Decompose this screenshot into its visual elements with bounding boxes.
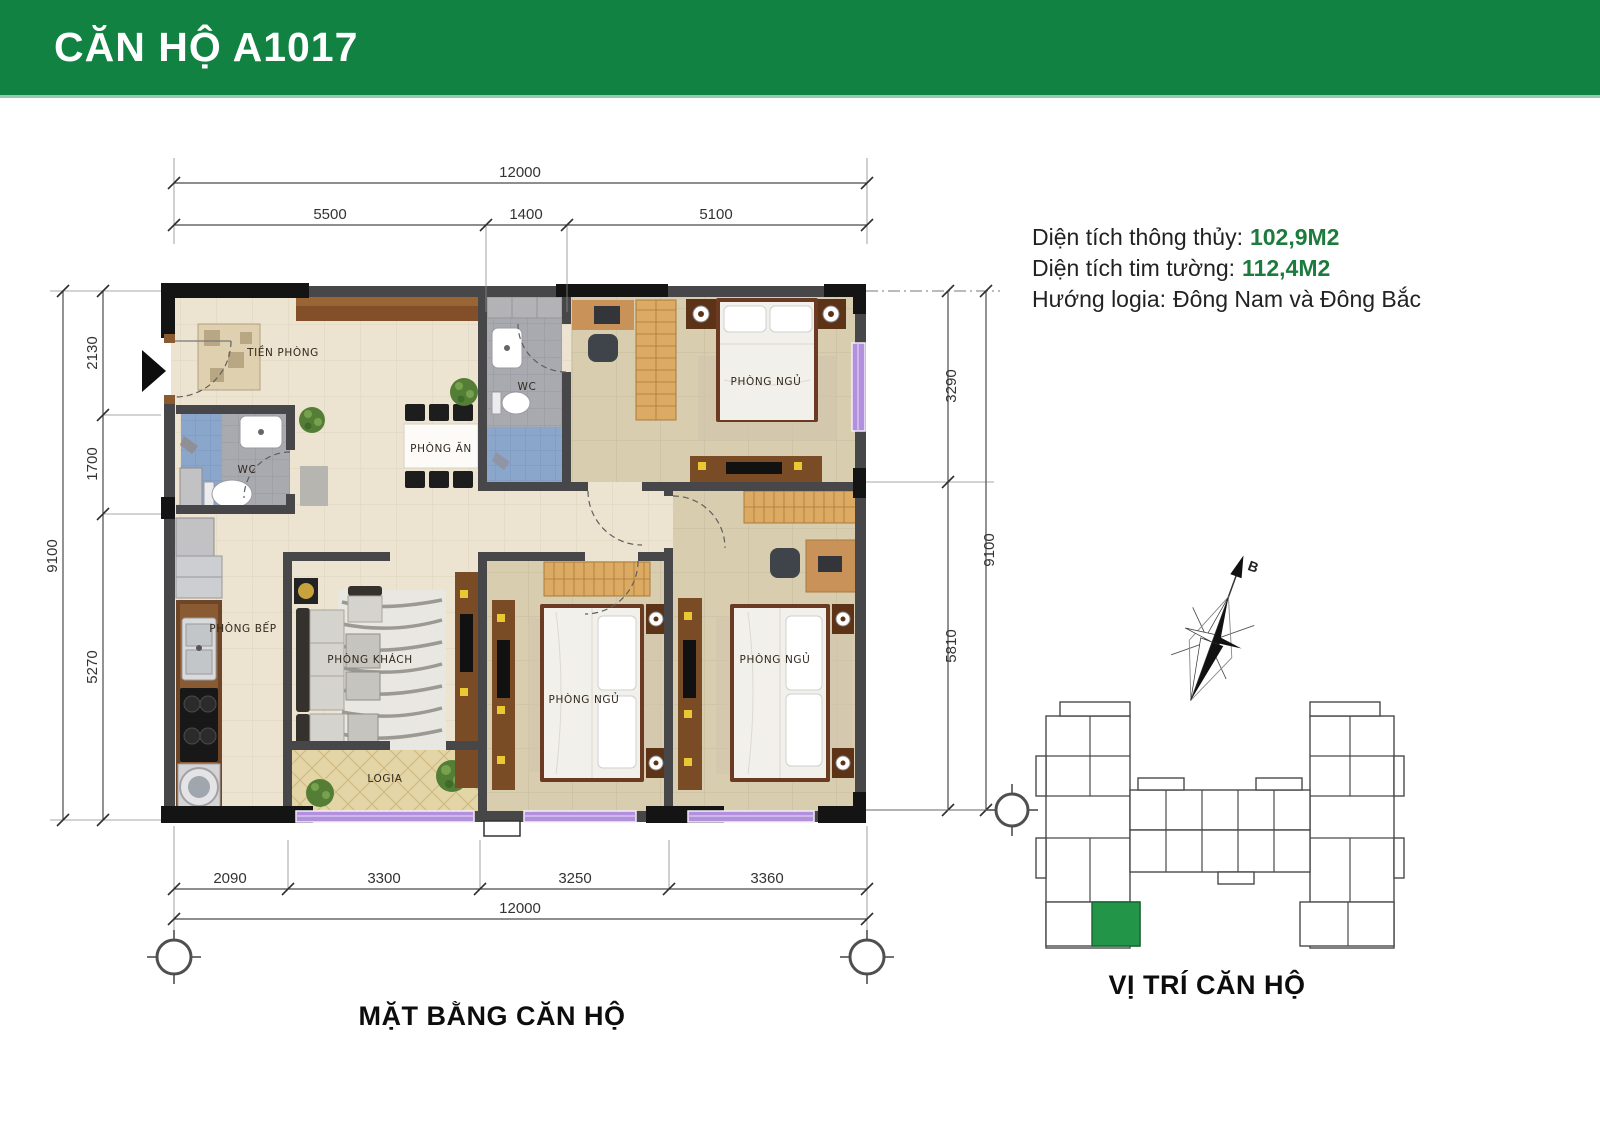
dim-top-1: 5500 — [313, 206, 346, 223]
building-location-diagram — [1036, 702, 1404, 948]
dim-left-3: 5270 — [84, 650, 101, 683]
dim-right-2: 5810 — [943, 629, 960, 662]
tv — [683, 640, 696, 698]
pillow — [786, 694, 822, 766]
tv — [726, 462, 782, 474]
dim-top-2: 1400 — [509, 206, 542, 223]
dim-left-1: 2130 — [84, 336, 101, 369]
plant — [299, 407, 325, 433]
dim-bottom-4: 3360 — [750, 870, 783, 887]
room-label-bedroom1: PHÒNG NGỦ — [731, 374, 802, 388]
tv — [460, 614, 473, 672]
room-label-bedroom3: PHÒNG NGỦ — [740, 652, 811, 666]
plan-caption: MẶT BẰNG CĂN HỘ — [327, 1001, 657, 1032]
dim-bottom-total: 12000 — [499, 900, 541, 917]
desk-chair — [770, 548, 800, 578]
armchair — [348, 596, 382, 622]
pillow — [598, 616, 636, 690]
highlighted-unit — [1092, 902, 1140, 946]
kitchen-furniture — [176, 556, 222, 811]
room-label-bedroom2: PHÒNG NGỦ — [549, 692, 620, 706]
hall-mat — [300, 466, 328, 506]
pillow — [770, 306, 812, 332]
compass-icon: B — [1159, 543, 1276, 712]
grid-bubble — [986, 784, 1038, 836]
grid-bubble — [147, 930, 201, 984]
room-label-wc1: WC — [238, 464, 257, 476]
toilet — [212, 480, 252, 508]
sofa-back — [296, 608, 310, 712]
pillow — [724, 306, 766, 332]
utility-closet — [176, 518, 214, 556]
room-label-wc2: WC — [518, 381, 537, 393]
tv-cabinet — [455, 572, 478, 788]
room-label-entry: TIỀN PHÒNG — [246, 345, 319, 359]
dim-bottom-1: 2090 — [213, 870, 246, 887]
ottoman — [348, 714, 378, 744]
plant — [306, 779, 334, 807]
dim-bottom-2: 3300 — [367, 870, 400, 887]
desk-chair — [588, 334, 618, 362]
entry-arrow-icon — [142, 350, 166, 392]
room-label-logia: LOGIA — [367, 773, 402, 785]
room-label-kitchen: PHÒNG BẾP — [209, 621, 276, 635]
grid-bubble — [840, 930, 894, 984]
room-label-living: PHÒNG KHÁCH — [327, 653, 412, 666]
dim-top-total: 12000 — [499, 164, 541, 181]
room-label-dining: PHÒNG ĂN — [410, 442, 472, 455]
dim-bottom-3: 3250 — [558, 870, 591, 887]
compass-north-label: B — [1246, 557, 1261, 575]
pillow — [598, 696, 636, 768]
floorplan-canvas: TIỀN PHÒNG WC WC PHÒNG ĂN PHÒNG BẾP PHÒN… — [0, 0, 1600, 1131]
dim-left-total: 9100 — [44, 539, 61, 572]
location-caption: VỊ TRÍ CĂN HỘ — [1057, 970, 1357, 1001]
ac-ledge — [484, 821, 520, 836]
dim-right-total: 9100 — [981, 533, 998, 566]
dim-top-3: 5100 — [699, 206, 732, 223]
toilet — [502, 392, 530, 414]
dim-right-1: 3290 — [943, 369, 960, 402]
plant — [450, 378, 478, 406]
tv — [497, 640, 510, 698]
dim-left-2: 1700 — [84, 447, 101, 480]
pillow — [786, 616, 822, 690]
